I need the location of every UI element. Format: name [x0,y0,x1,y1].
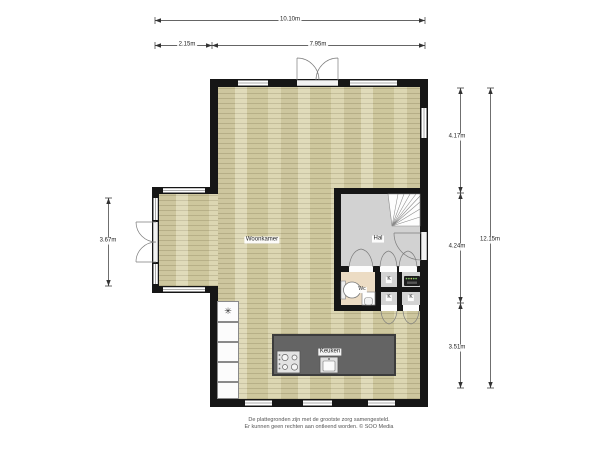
bay-doors-arc [136,222,156,262]
front-doors-arc [297,58,338,80]
entrance-door-arc [394,233,421,260]
wc-door-arc [349,249,373,267]
dim-label-bay-height: 3.67m [98,238,118,245]
dim-label-bay-width: 2.15m [177,42,197,49]
room-label-closet: K [386,295,392,301]
closet-door-arc [380,251,397,267]
floorplan: ✳ [0,0,600,450]
meter-panel-icon [404,276,420,286]
dimension-lines [105,17,494,388]
room-label-closet: K [386,277,392,283]
dim-label-total-width: 10.10m [278,17,301,24]
door-arcs [136,58,421,324]
staircase [388,194,420,226]
toilet-icon [362,292,375,305]
disclaimer: De plattegronden zijn met de grootste zo… [245,417,394,431]
room-label-wc: Wc [357,287,367,293]
dim-label-right-middle: 4.24m [447,244,467,251]
room-label-hal: Hal [372,236,384,243]
disclaimer-line2: Er kunnen geen rechten aan ontleend word… [245,424,394,431]
closet-door-arc [403,311,419,324]
plan-linework [0,0,600,450]
closet-door-arc [381,311,397,324]
dim-label-right-bottom: 3.51m [447,345,467,352]
room-label-woonkamer: Woonkamer [244,237,279,244]
stove-icon [277,351,300,373]
dim-label-main-width: 7.95m [308,42,328,49]
kitchen-sink-icon [320,357,338,373]
room-label-closet: K [408,295,414,301]
dim-label-right-top: 4.17m [447,134,467,141]
room-label-keuken: Keuken [318,349,341,356]
dim-label-total-height: 12.15m [478,237,501,244]
